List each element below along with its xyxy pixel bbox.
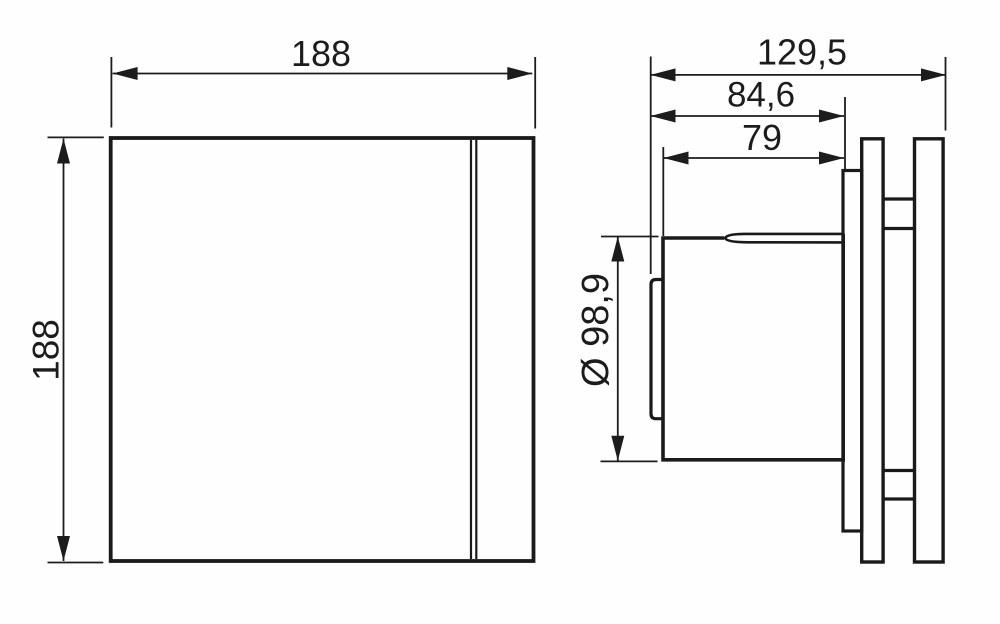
svg-text:79: 79 xyxy=(742,117,782,158)
svg-text:84,6: 84,6 xyxy=(727,76,795,115)
svg-text:188: 188 xyxy=(291,33,351,74)
svg-text:129,5: 129,5 xyxy=(757,32,847,73)
svg-text:188: 188 xyxy=(26,319,67,381)
svg-text:Ø 98,9: Ø 98,9 xyxy=(575,273,617,387)
